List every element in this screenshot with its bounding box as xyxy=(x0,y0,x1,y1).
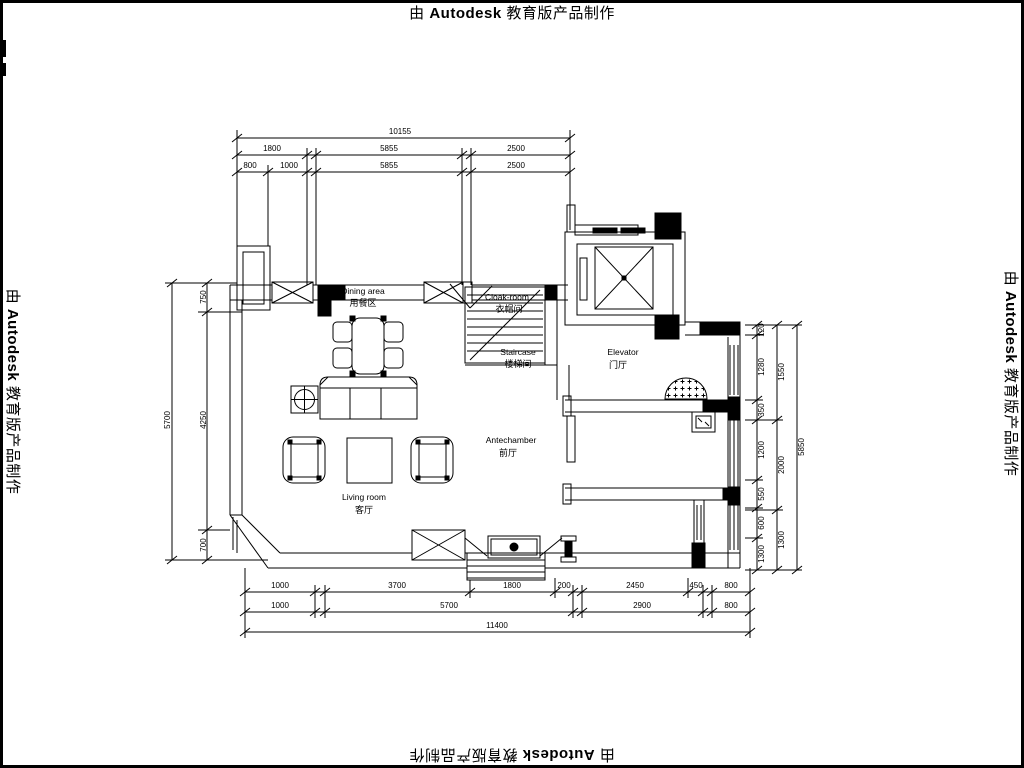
sofa-icon xyxy=(320,377,417,419)
dim-label: 2450 xyxy=(626,581,644,590)
dim-label: 800 xyxy=(724,601,738,610)
dim-label: 1000 xyxy=(271,601,289,610)
floorplan-drawing: 10155 1800 5855 2500 800 1000 5855 2500 … xyxy=(0,0,1024,768)
room-label-cloakroom-zh: 衣帽间 xyxy=(495,303,522,314)
dim-label: 1000 xyxy=(280,161,298,170)
elevator-shaft xyxy=(565,205,685,339)
window-icon xyxy=(272,282,313,303)
chair-icon xyxy=(333,348,352,368)
room-label-living-en: Living room xyxy=(342,492,386,502)
room-label-dining-zh: 用餐区 xyxy=(349,297,376,308)
armchair-icon xyxy=(411,437,453,483)
dim-label: 200 xyxy=(557,581,571,590)
tv-cabinet-icon xyxy=(488,536,540,558)
dining-table-icon xyxy=(333,316,403,376)
room-label-elevator-en: Elevator xyxy=(607,347,638,357)
room-label-cloakroom-en: Cloak-room xyxy=(485,292,529,302)
dim-label: 1800 xyxy=(263,144,281,153)
dim-right-total: 5850 xyxy=(797,438,806,456)
window-icon xyxy=(730,505,738,550)
room-label-staircase-en: Staircase xyxy=(500,347,536,357)
dim-label: 5700 xyxy=(440,601,458,610)
furniture xyxy=(283,316,453,483)
dim-left-total: 5700 xyxy=(163,411,172,429)
room-label-staircase-zh: 楼梯间 xyxy=(504,358,531,369)
dim-label: 1280 xyxy=(757,358,766,376)
side-table-icon xyxy=(291,386,318,413)
cad-plot-page: 由 Autodesk 教育版产品制作 由 Autodesk 教育版产品制作 由 … xyxy=(0,0,1024,768)
dim-label: 2500 xyxy=(507,144,525,153)
dim-label: 5855 xyxy=(380,161,398,170)
dim-label: 3700 xyxy=(388,581,406,590)
dim-label: 550 xyxy=(757,487,766,501)
elevator-car-icon xyxy=(595,247,653,309)
dim-label: 2000 xyxy=(777,456,786,474)
chair-icon xyxy=(384,348,403,368)
room-label-living-zh: 客厅 xyxy=(355,504,373,515)
window-icon xyxy=(730,420,738,487)
dim-label: 120 xyxy=(757,323,766,337)
dim-label: 800 xyxy=(724,581,738,590)
dim-label: 800 xyxy=(243,161,257,170)
dim-label: 600 xyxy=(757,516,766,530)
dim-label: 2500 xyxy=(507,161,525,170)
cabinet-icon xyxy=(692,412,715,432)
room-label-elevator-zh: 门厅 xyxy=(609,359,627,370)
bay-window xyxy=(412,530,576,580)
room-label-antechamber-en: Antechamber xyxy=(486,435,537,445)
dim-label: 1000 xyxy=(271,581,289,590)
chair-icon xyxy=(384,322,403,342)
dim-label: 1200 xyxy=(757,441,766,459)
dim-label: 2900 xyxy=(633,601,651,610)
dim-bottom-total: 11400 xyxy=(486,621,508,630)
dim-label: 450 xyxy=(689,581,703,590)
dim-label: 1300 xyxy=(757,545,766,563)
dim-label: 700 xyxy=(199,538,208,552)
chair-icon xyxy=(333,322,352,342)
decor-niche-icon xyxy=(665,378,707,399)
window-icon xyxy=(412,530,465,560)
dim-label: 1800 xyxy=(503,581,521,590)
armchair-icon xyxy=(283,437,325,483)
window-icon xyxy=(730,345,738,395)
dim-label: 350 xyxy=(757,403,766,417)
dim-label: 5855 xyxy=(380,144,398,153)
coffee-table-icon xyxy=(347,438,392,483)
interior-walls xyxy=(563,378,740,568)
dim-label: 1300 xyxy=(777,531,786,549)
room-label-dining-en: Dining area xyxy=(341,286,385,296)
pillar-icon xyxy=(561,536,576,562)
room-label-antechamber-zh: 前厅 xyxy=(499,447,517,458)
dim-label: 4250 xyxy=(199,411,208,429)
dim-label: 1550 xyxy=(777,363,786,381)
dim-top-total: 10155 xyxy=(389,127,412,136)
door-leaf xyxy=(567,416,575,462)
dim-label: 750 xyxy=(199,290,208,304)
